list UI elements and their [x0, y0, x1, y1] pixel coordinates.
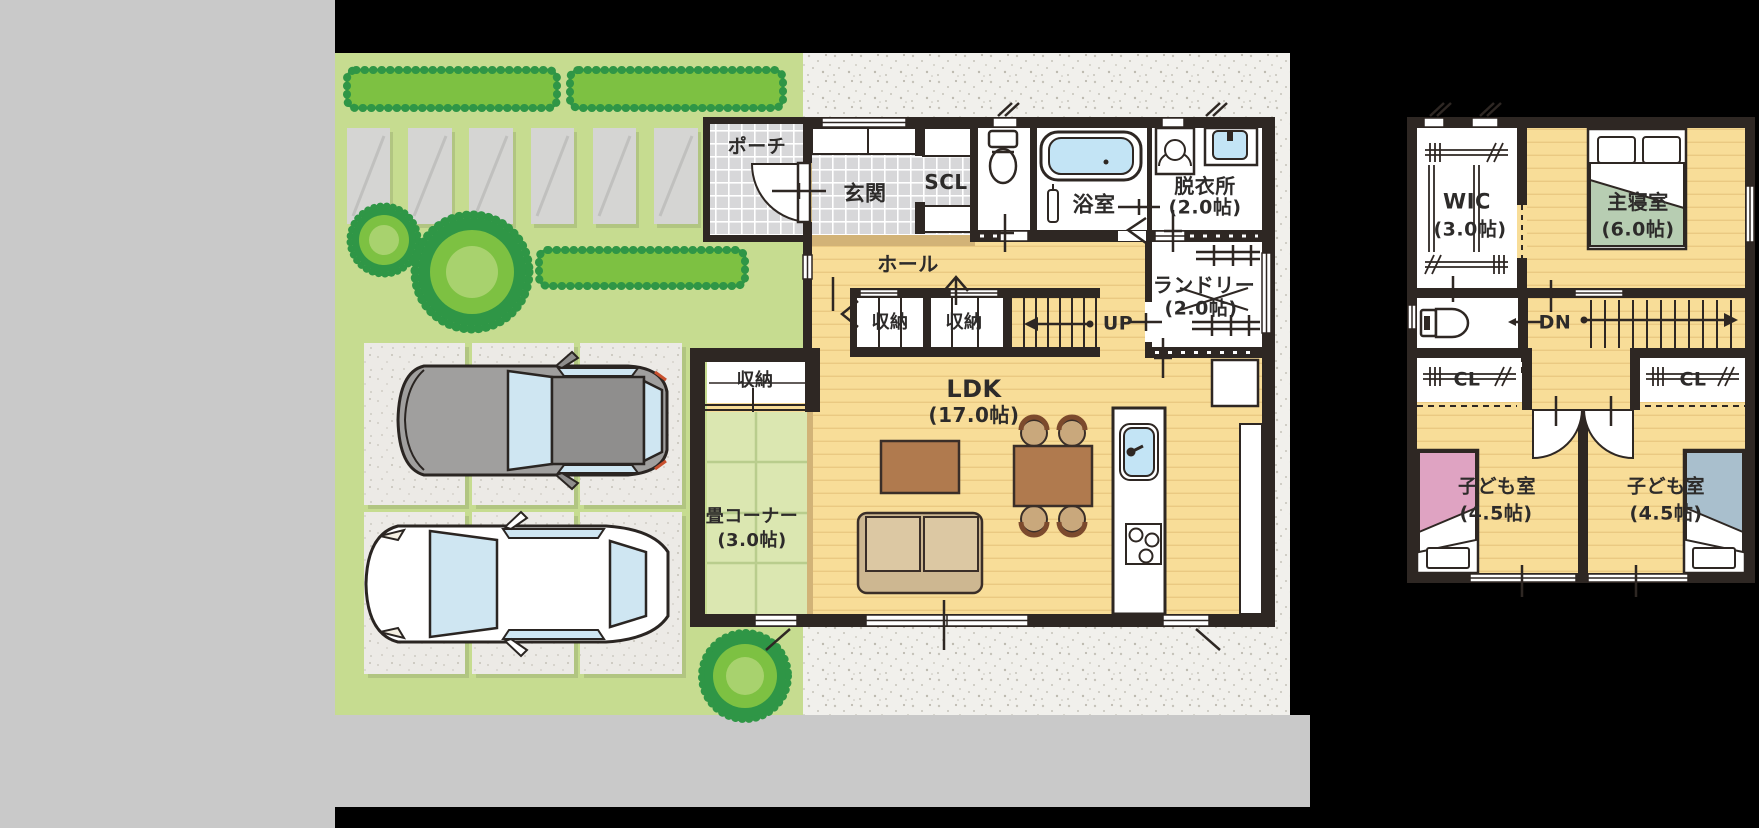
hedge: [539, 250, 745, 286]
sofa: [858, 513, 982, 593]
floor2-plan: [1407, 103, 1755, 597]
tree: [415, 215, 529, 329]
dining-chair: [1059, 417, 1085, 446]
kids-bed-right: [1684, 450, 1745, 573]
car-sedan: [366, 512, 668, 656]
dining-table: [1014, 446, 1092, 506]
floor1-plan: [690, 103, 1275, 650]
washing-machine: [1156, 128, 1194, 174]
car-suv: [398, 352, 667, 489]
left-gray-panel: [0, 0, 335, 828]
hedge: [347, 70, 557, 108]
dining-chair: [1059, 506, 1085, 535]
dining-chair: [1021, 417, 1047, 446]
hedge: [570, 70, 783, 108]
vanity-sink: [1205, 128, 1257, 165]
toilet-fixture: [989, 131, 1017, 183]
hall-storage-a: [857, 297, 923, 347]
kids-bed-left: [1417, 450, 1478, 573]
floor-plan-graphics: [0, 0, 1759, 828]
tatami-threshold: [807, 412, 813, 614]
dining-chair: [1021, 506, 1047, 535]
kitchen-back-counter: [1240, 424, 1262, 614]
shower-fixture: [1048, 190, 1058, 222]
scl-cabinet: [923, 128, 973, 156]
entrance-step: [812, 235, 975, 246]
master-bed: [1588, 129, 1686, 249]
tree: [350, 206, 418, 274]
floor-plan-image: ポーチ 玄関 SCL 浴室 脱衣所 (2.0帖) ホール 収納 収納 UP ラン…: [0, 0, 1759, 828]
tree: [702, 633, 788, 719]
toilet2-fixture: [1421, 309, 1468, 337]
hall-storage-b: [927, 297, 1003, 347]
kitchen-stove: [1126, 524, 1161, 564]
wic-room: [1417, 128, 1517, 288]
road-strip: [335, 715, 1310, 807]
closet-right: [1640, 358, 1745, 402]
refrigerator: [1212, 360, 1258, 406]
closet-left: [1417, 358, 1522, 402]
scl-cabinet: [923, 206, 973, 232]
bathtub: [1041, 132, 1141, 180]
living-table: [881, 441, 959, 493]
